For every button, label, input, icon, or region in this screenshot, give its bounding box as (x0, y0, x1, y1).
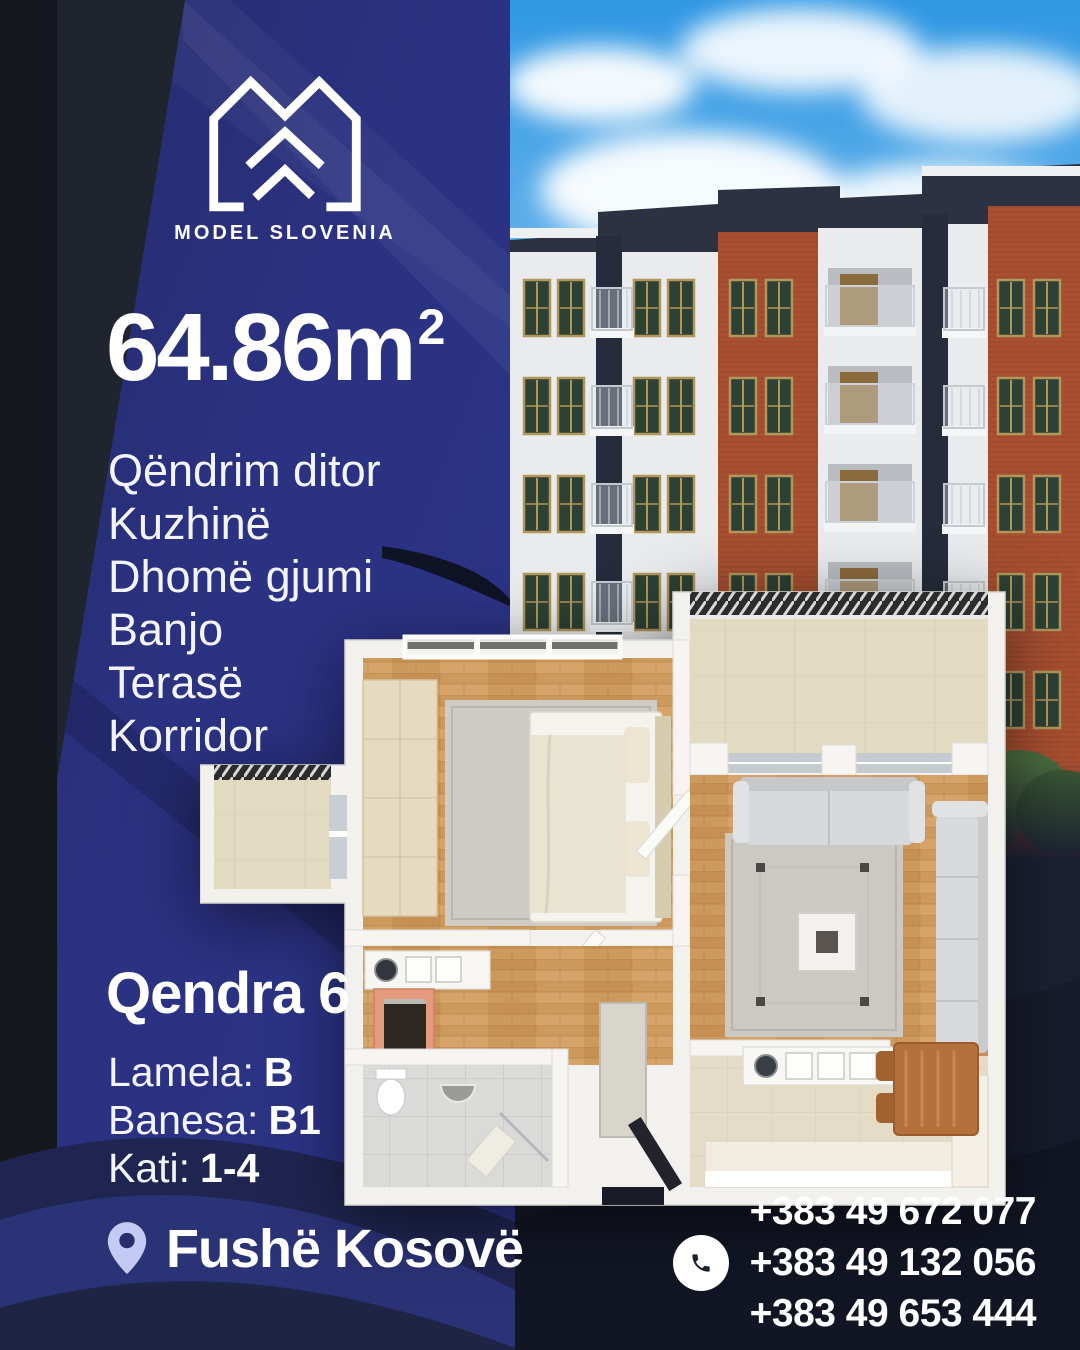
detail-value: B (264, 1049, 294, 1095)
detail-label: Kati: (108, 1145, 190, 1191)
brand-logo: MODEL SLOVENIA (170, 64, 400, 245)
area-exponent: 2 (418, 299, 446, 355)
brand-logo-icon (197, 64, 373, 216)
unit-details: Lamela:B Banesa:B1 Kati:1-4 (108, 1048, 321, 1192)
phone-number: +383 49 672 077 (750, 1186, 1036, 1237)
detail-label: Banesa: (108, 1097, 258, 1143)
contact-block: +383 49 672 077 +383 49 132 056 +383 49 … (672, 1186, 1036, 1339)
detail-row: Banesa:B1 (108, 1096, 321, 1144)
room-list: Qëndrim ditor Kuzhinë Dhomë gjumi Banjo … (108, 444, 381, 762)
room-item: Terasë (108, 656, 381, 709)
phone-number: +383 49 132 056 (750, 1237, 1036, 1288)
area-value: 64.86m (106, 294, 414, 401)
location-pin-icon (104, 1220, 150, 1278)
detail-value: 1-4 (200, 1145, 259, 1191)
room-item: Banjo (108, 603, 381, 656)
room-item: Qëndrim ditor (108, 444, 381, 497)
brand-name: MODEL SLOVENIA (170, 222, 400, 245)
detail-row: Kati:1-4 (108, 1144, 321, 1192)
real-estate-poster: MODEL SLOVENIA 64.86m2 Qëndrim ditor Kuz… (0, 0, 1080, 1350)
room-item: Kuzhinë (108, 497, 381, 550)
phone-number: +383 49 653 444 (750, 1288, 1036, 1339)
area-size: 64.86m2 (106, 298, 441, 399)
phone-list: +383 49 672 077 +383 49 132 056 +383 49 … (750, 1186, 1036, 1339)
room-item: Dhomë gjumi (108, 550, 381, 603)
detail-label: Lamela: (108, 1049, 254, 1095)
phone-icon (672, 1234, 730, 1292)
project-name: Qendra 6 (106, 960, 349, 1027)
location-text: Fushë Kosovë (166, 1218, 523, 1280)
room-item: Korridor (108, 709, 381, 762)
location: Fushë Kosovë (104, 1218, 523, 1280)
detail-value: B1 (268, 1097, 320, 1143)
detail-row: Lamela:B (108, 1048, 321, 1096)
